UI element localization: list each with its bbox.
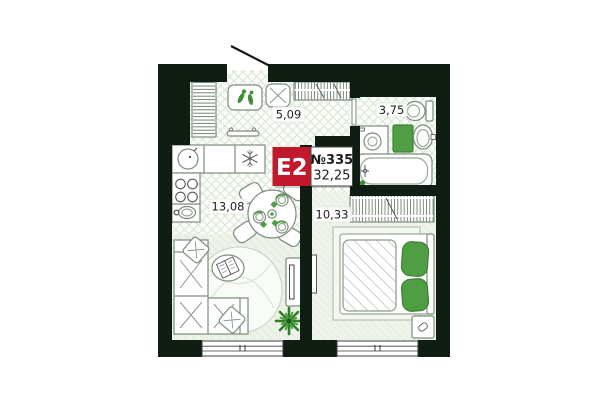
pillow — [401, 241, 429, 277]
shoe-cabinet — [228, 85, 262, 110]
tv — [290, 265, 295, 299]
pouf — [266, 84, 290, 107]
window-bedroom — [337, 341, 418, 356]
wall-bathroom-bottom — [350, 185, 436, 196]
bathroom-area-value: 3,75 — [379, 103, 405, 117]
hallway-wardrobe — [192, 80, 216, 137]
unit-number-value: №335 — [310, 153, 353, 168]
kitchen-sink-round — [178, 148, 198, 169]
washing-machine — [357, 126, 388, 157]
window-living — [202, 341, 283, 356]
unit-type-value: E2 — [276, 155, 308, 181]
bathroom-door-leaf — [352, 99, 356, 125]
coat-rack — [294, 82, 352, 100]
bathroom-area-label: 3,75 — [376, 103, 407, 117]
toilet — [405, 101, 433, 121]
bathtub — [356, 154, 432, 188]
bed — [333, 227, 434, 320]
unit-badge: E2 №335 32,25 — [273, 147, 355, 188]
floorplan: 5,09 3,75 13,08 10,33 E2 №335 32,25 — [0, 0, 605, 403]
unit-total-area-value: 32,25 — [313, 169, 350, 184]
nightstand — [412, 316, 434, 338]
bedroom-area-label: 10,33 — [313, 207, 351, 222]
wall-right — [436, 64, 450, 357]
wall-left — [158, 64, 172, 357]
floorplan-drawing: 5,09 3,75 13,08 10,33 E2 №335 32,25 — [0, 0, 605, 403]
hallway-area-value: 5,09 — [276, 108, 302, 122]
wall-top-mid — [268, 64, 352, 82]
blanket — [343, 240, 396, 311]
wall-bottom-left — [158, 340, 202, 357]
bedroom-tv — [312, 255, 317, 293]
plant — [276, 308, 302, 334]
bedroom-wardrobe — [350, 195, 434, 222]
wall-bottom-right — [418, 340, 450, 357]
kitchen-living-area-value: 13,08 — [212, 200, 245, 214]
entry-threshold-floor — [227, 70, 268, 84]
pillow — [401, 278, 429, 312]
bedroom-area-value: 10,33 — [316, 208, 349, 222]
wall-bottom-center — [283, 340, 337, 357]
entrance-door-swing — [231, 46, 269, 66]
wall-bathroom-door-jamb — [350, 82, 360, 98]
bath-mat — [393, 125, 413, 152]
kitchen-living-area-label: 13,08 — [209, 199, 247, 214]
hallway-area-label: 5,09 — [272, 107, 305, 122]
wall-top-bathroom — [352, 64, 450, 97]
